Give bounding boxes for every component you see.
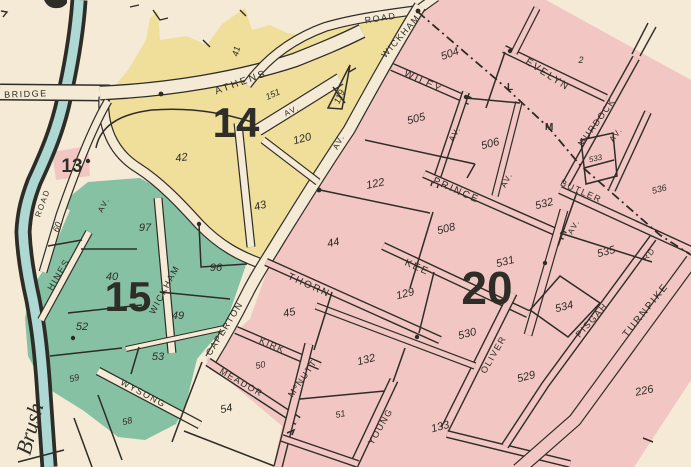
svg-text:51: 51 <box>334 408 346 420</box>
svg-text:20: 20 <box>461 262 512 314</box>
svg-text:BRIDGE: BRIDGE <box>4 88 48 100</box>
svg-text:40: 40 <box>106 271 119 283</box>
svg-text:M: M <box>545 122 553 133</box>
svg-text:14: 14 <box>213 99 260 146</box>
svg-text:42: 42 <box>175 151 189 165</box>
svg-text:44: 44 <box>326 236 340 250</box>
svg-text:53: 53 <box>152 351 165 363</box>
svg-text:50: 50 <box>254 359 266 371</box>
svg-text:2: 2 <box>577 55 583 65</box>
svg-text:97: 97 <box>139 222 152 234</box>
svg-text:49: 49 <box>172 310 184 322</box>
svg-text:54: 54 <box>219 402 233 416</box>
svg-text:L: L <box>507 82 513 93</box>
svg-text:13: 13 <box>61 156 82 177</box>
svg-text:96: 96 <box>210 262 223 274</box>
svg-text:52: 52 <box>76 321 88 333</box>
